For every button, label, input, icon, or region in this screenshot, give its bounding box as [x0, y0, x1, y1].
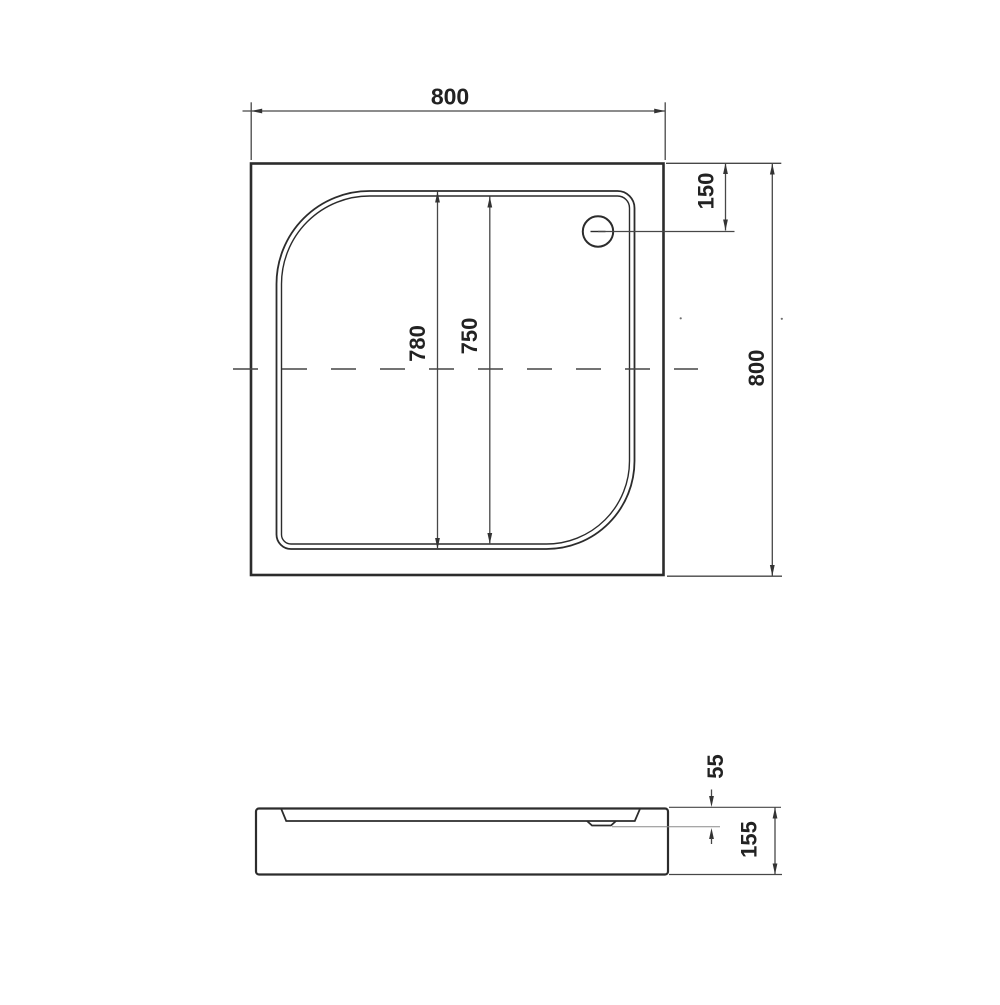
svg-text:155: 155	[737, 821, 762, 858]
svg-text:750: 750	[457, 318, 482, 355]
svg-text:150: 150	[694, 173, 719, 210]
svg-text:800: 800	[744, 350, 769, 387]
svg-text:800: 800	[431, 84, 469, 110]
svg-text:780: 780	[405, 325, 430, 362]
svg-text:55: 55	[703, 754, 728, 778]
